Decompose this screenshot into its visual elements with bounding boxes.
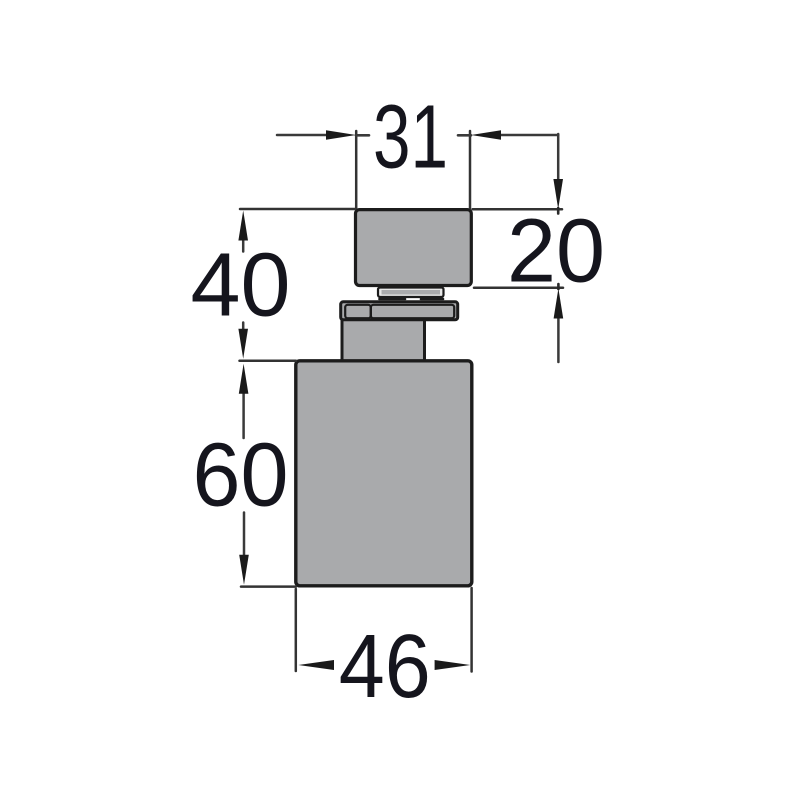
svg-text:60: 60 [193, 426, 289, 526]
svg-text:40: 40 [191, 236, 291, 336]
svg-text:46: 46 [339, 617, 431, 717]
svg-text:20: 20 [507, 202, 605, 302]
svg-text:31: 31 [373, 88, 448, 188]
